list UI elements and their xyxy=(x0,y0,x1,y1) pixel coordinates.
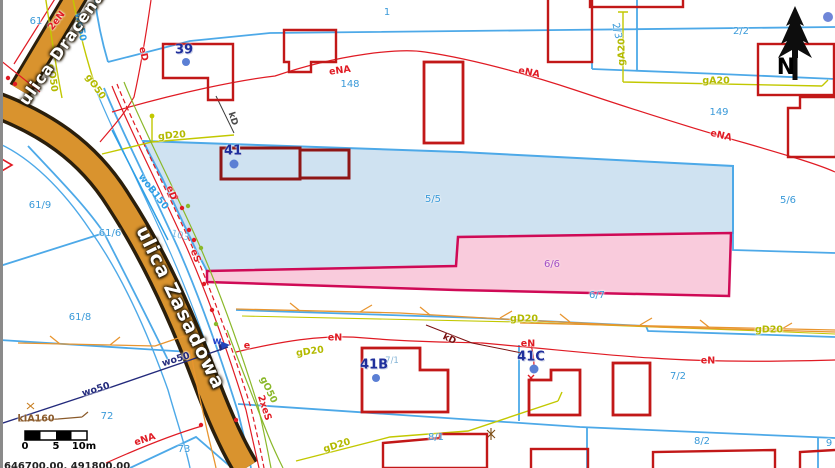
building-39 xyxy=(163,44,233,100)
frame-edge xyxy=(0,0,3,468)
building-top-mid xyxy=(284,30,336,72)
building-41c-2 xyxy=(613,363,650,415)
corner-coordinates: 646700.00, 491800.00 xyxy=(4,461,130,468)
map-viewport[interactable]: N 646700.00, 491800.00 6111482/32/21495/… xyxy=(0,0,835,468)
building-tall xyxy=(424,62,463,143)
address-dot-41 xyxy=(230,160,239,169)
corner-dot xyxy=(823,12,833,22)
address-dot-41b xyxy=(372,374,380,382)
road-dracena xyxy=(20,0,82,90)
building-bottom-3 xyxy=(653,450,775,468)
address-dot-39 xyxy=(182,58,190,66)
building-bottom-2 xyxy=(531,449,588,468)
building-bottom-1 xyxy=(383,434,487,468)
address-dot-41c xyxy=(530,365,539,374)
building-top-cut-1 xyxy=(548,0,592,62)
building-right-edge xyxy=(788,97,835,157)
map-linework xyxy=(0,0,835,468)
scale-bar xyxy=(25,431,87,440)
